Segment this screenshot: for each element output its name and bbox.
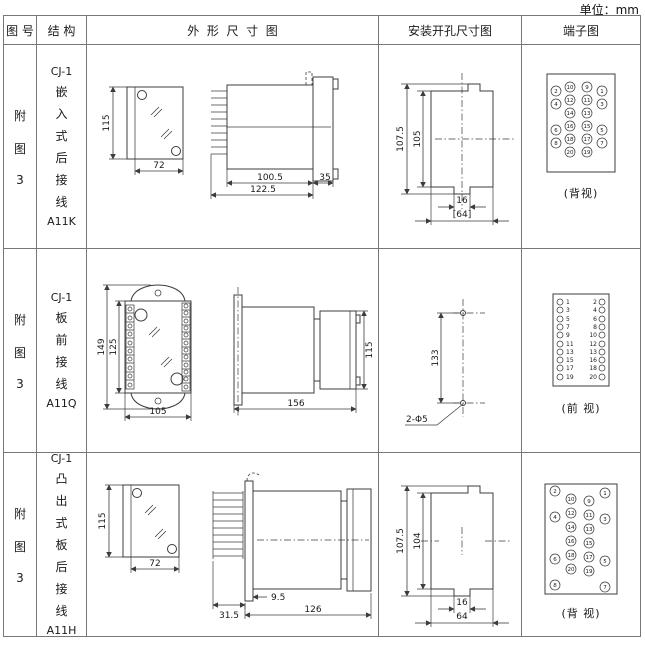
svg-text:3: 3 — [603, 517, 607, 523]
terminal-diagram-row1: 10 12 14 16 18 20 9 11 13 15 17 19 2 4 6… — [522, 45, 640, 249]
fig-char: 3 — [16, 173, 24, 187]
svg-text:8: 8 — [553, 583, 557, 589]
structure-char: 入 — [55, 105, 67, 122]
install-drawing-row2: 133 2-Φ5 — [379, 249, 522, 453]
front-view-drawing-a11q: 149 125 105 — [93, 275, 208, 427]
header-outline-dims: 外 形 尺 寸 图 — [87, 16, 379, 45]
dim-label-width: 72 — [149, 559, 160, 569]
dim-label-offset: 9.5 — [271, 593, 285, 603]
holes-shape — [453, 299, 485, 417]
svg-text:19: 19 — [584, 150, 591, 156]
side-view-body — [213, 473, 371, 601]
fig-char: 图 — [14, 344, 26, 361]
dim-label-height: 115 — [365, 341, 375, 358]
svg-text:16: 16 — [568, 539, 575, 545]
structure-model: CJ-1 — [51, 453, 73, 465]
svg-text:6: 6 — [593, 316, 597, 323]
header-structure: 结 构 — [37, 16, 87, 45]
dim-label-body-length: 100.5 — [257, 173, 283, 183]
side-view-body — [234, 287, 360, 417]
svg-text:13: 13 — [566, 349, 574, 356]
terminal-numbers: 1 3 5 7 9 11 13 15 17 19 2 4 6 8 10 12 1 — [566, 299, 597, 381]
dim-label-total-height: 149 — [97, 338, 107, 355]
structure-char: 接 — [55, 171, 67, 188]
view-caption: (背 视) — [561, 605, 600, 621]
dim-label-opening-height: 104 — [413, 532, 423, 549]
svg-text:9: 9 — [566, 332, 570, 339]
structure-char: 前 — [55, 331, 67, 348]
structure-row3: CJ-1 凸 出 式 板 后 接 线 A11H — [37, 453, 87, 636]
svg-text:4: 4 — [593, 307, 597, 314]
dim-label-notch-width: 16 — [456, 598, 468, 608]
svg-text:11: 11 — [584, 98, 591, 104]
outline-drawing-row1: 115 72 100.5 — [87, 45, 379, 249]
svg-text:10: 10 — [568, 497, 575, 503]
svg-text:16: 16 — [589, 357, 597, 364]
svg-text:15: 15 — [586, 541, 593, 547]
dim-label-total-height: 107.5 — [396, 528, 406, 554]
svg-text:15: 15 — [584, 124, 591, 130]
fig-char: 图 — [14, 538, 26, 555]
cutout-shape — [431, 73, 515, 209]
dim-label-holes: 2-Φ5 — [406, 415, 428, 425]
svg-text:3: 3 — [566, 307, 570, 314]
outline-drawing-row3: 115 72 — [87, 453, 379, 636]
svg-text:11: 11 — [566, 341, 574, 348]
terminal-outline — [553, 294, 609, 386]
dim-label-opening-height: 105 — [413, 130, 423, 147]
fig-no-row1: 附 图 3 — [4, 45, 37, 249]
structure-char: 板 — [55, 536, 67, 553]
holes-drawing-a11q: 133 2-Φ5 — [385, 277, 515, 437]
svg-text:1: 1 — [600, 89, 604, 95]
dim-label-height: 115 — [102, 114, 112, 131]
svg-text:19: 19 — [566, 374, 574, 381]
spec-table: 图 号 结 构 外 形 尺 寸 图 安装开孔尺寸图 端子图 附 图 3 CJ-1… — [3, 15, 641, 637]
side-view-drawing-a11h: 9.5 31.5 126 — [201, 469, 377, 625]
terminal-map-back-view: 10 12 14 16 18 20 9 11 13 15 17 19 2 4 6… — [544, 483, 618, 595]
svg-text:20: 20 — [568, 567, 575, 573]
svg-text:20: 20 — [567, 150, 574, 156]
svg-text:15: 15 — [566, 357, 574, 364]
structure-char: 后 — [55, 558, 67, 575]
side-view-dimensions: 115 156 — [234, 311, 375, 413]
terminal-numbers: 10 12 14 16 18 20 9 11 13 15 17 19 2 4 6… — [553, 489, 607, 591]
svg-text:7: 7 — [566, 324, 570, 331]
dim-label-width: 72 — [153, 161, 164, 171]
front-view-body — [123, 485, 179, 557]
svg-text:8: 8 — [593, 324, 597, 331]
header-fig-no: 图 号 — [4, 16, 37, 45]
structure-code: A11H — [47, 624, 77, 636]
terminal-diagram-row2: 1 3 5 7 9 11 13 15 17 19 2 4 6 8 10 12 1 — [522, 249, 640, 453]
cutout-dimensions: 107.5 104 16 64 — [396, 486, 509, 627]
terminal-map-front-view: 1 3 5 7 9 11 13 15 17 19 2 4 6 8 10 12 1 — [552, 293, 610, 387]
outline-drawing-row2: 149 125 105 — [87, 249, 379, 453]
svg-text:5: 5 — [603, 559, 607, 565]
terminal-outline — [545, 484, 617, 594]
structure-row1: CJ-1 嵌 入 式 后 接 线 A11K — [37, 45, 87, 249]
structure-char: 出 — [55, 492, 67, 509]
side-view-body — [211, 72, 338, 181]
svg-text:14: 14 — [568, 525, 575, 531]
structure-code: A11K — [47, 215, 76, 228]
structure-code: A11Q — [46, 397, 76, 410]
svg-text:7: 7 — [603, 585, 607, 591]
front-view-drawing-a11h: 115 72 — [93, 469, 193, 601]
header-install-dims: 安装开孔尺寸图 — [379, 16, 522, 45]
svg-text:5: 5 — [566, 316, 570, 323]
svg-text:6: 6 — [554, 128, 558, 134]
terminal-diagram-row3: 10 12 14 16 18 20 9 11 13 15 17 19 2 4 6… — [522, 453, 640, 636]
svg-text:8: 8 — [554, 141, 558, 147]
front-view-dimensions: 115 72 — [102, 87, 183, 175]
dim-label-pin-length: 31.5 — [219, 611, 239, 621]
structure-char: 嵌 — [55, 83, 67, 100]
structure-model: CJ-1 — [51, 65, 73, 78]
side-view-drawing-a11q: 115 156 — [216, 287, 376, 419]
svg-text:13: 13 — [584, 111, 591, 117]
fig-no-row2: 附 图 3 — [4, 249, 37, 453]
dim-label-total-height: 107.5 — [396, 126, 406, 152]
structure-char: 线 — [55, 375, 67, 392]
terminal-map-back-view: 10 12 14 16 18 20 9 11 13 15 17 19 2 4 6… — [546, 73, 616, 173]
view-caption: (前 视) — [561, 400, 600, 416]
holes-dimensions: 133 2-Φ5 — [405, 313, 463, 425]
svg-text:12: 12 — [568, 511, 575, 517]
side-view-drawing-a11k: 100.5 35 122.5 — [205, 71, 355, 203]
fig-char: 图 — [14, 140, 26, 157]
svg-text:4: 4 — [554, 102, 558, 108]
dim-label-total-length: 122.5 — [250, 185, 276, 195]
svg-text:6: 6 — [553, 557, 557, 563]
svg-text:16: 16 — [567, 124, 574, 130]
terminal-numbers: 10 12 14 16 18 20 9 11 13 15 17 19 2 4 6… — [554, 85, 604, 156]
svg-text:20: 20 — [589, 374, 597, 381]
dim-label-bezel: 35 — [319, 173, 330, 183]
svg-text:18: 18 — [567, 137, 574, 143]
structure-char: 线 — [55, 193, 67, 210]
terminal-circles — [557, 299, 605, 380]
svg-text:17: 17 — [566, 365, 574, 372]
terminal-circles — [550, 486, 610, 592]
svg-text:18: 18 — [568, 553, 575, 559]
dim-label-body-length: 126 — [304, 605, 321, 615]
fig-no-row3: 附 图 3 — [4, 453, 37, 636]
svg-text:13: 13 — [589, 349, 597, 356]
svg-text:9: 9 — [587, 499, 591, 505]
cutout-shape — [421, 486, 511, 596]
structure-char: 式 — [55, 127, 67, 144]
dim-label-total-length: 156 — [287, 399, 304, 409]
svg-text:4: 4 — [553, 515, 557, 521]
svg-text:5: 5 — [600, 128, 604, 134]
fig-char: 附 — [14, 107, 26, 124]
front-view-dimensions: 115 72 — [98, 485, 179, 573]
front-view-drawing-a11k: 115 72 — [97, 71, 197, 203]
structure-char: 式 — [55, 514, 67, 531]
datasheet-page: 单位：mm 图 号 结 构 外 形 尺 寸 图 安装开孔尺寸图 端子图 附 图 … — [0, 0, 645, 646]
install-drawing-row3: 107.5 104 16 64 — [379, 453, 522, 636]
front-view-body — [127, 87, 183, 159]
dim-label-width: 105 — [149, 407, 166, 417]
svg-text:3: 3 — [600, 102, 604, 108]
structure-char: 后 — [55, 149, 67, 166]
install-drawing-row1: 107.5 105 16 [64] — [379, 45, 522, 249]
svg-text:2: 2 — [553, 489, 557, 495]
dim-label-opening-width: 64 — [456, 612, 468, 622]
svg-text:9: 9 — [585, 85, 589, 91]
header-terminal: 端子图 — [522, 16, 640, 45]
dim-label-notch-width: 16 — [456, 196, 468, 206]
svg-text:7: 7 — [600, 141, 604, 147]
dim-label-hole-spacing: 133 — [431, 349, 441, 366]
structure-char: 接 — [55, 580, 67, 597]
svg-text:12: 12 — [567, 98, 574, 104]
cutout-dimensions: 107.5 105 16 [64] — [396, 84, 509, 225]
svg-text:1: 1 — [566, 299, 570, 306]
structure-model: CJ-1 — [51, 291, 73, 304]
structure-char: 接 — [55, 353, 67, 370]
view-caption: (背视) — [564, 185, 599, 201]
svg-text:2: 2 — [554, 89, 558, 95]
svg-text:1: 1 — [603, 491, 607, 497]
dim-label-opening-width: [64] — [452, 210, 470, 220]
structure-char: 凸 — [55, 470, 67, 487]
side-view-dimensions: 100.5 35 122.5 — [211, 154, 333, 199]
svg-text:11: 11 — [586, 513, 593, 519]
fig-char: 3 — [16, 571, 24, 585]
svg-text:19: 19 — [586, 569, 593, 575]
svg-text:10: 10 — [567, 85, 574, 91]
fig-char: 附 — [14, 505, 26, 522]
svg-text:17: 17 — [584, 137, 591, 143]
cutout-drawing-a11k: 107.5 105 16 [64] — [383, 59, 518, 229]
svg-text:17: 17 — [586, 555, 593, 561]
svg-text:2: 2 — [593, 299, 597, 306]
fig-char: 3 — [16, 377, 24, 391]
svg-text:10: 10 — [589, 332, 597, 339]
structure-row2: CJ-1 板 前 接 线 A11Q — [37, 249, 87, 453]
terminal-circles — [551, 82, 607, 157]
svg-text:13: 13 — [586, 527, 593, 533]
fig-char: 附 — [14, 311, 26, 328]
dim-label-height: 115 — [98, 512, 108, 529]
structure-char: 线 — [55, 602, 67, 619]
structure-char: 板 — [55, 309, 67, 326]
svg-text:14: 14 — [567, 111, 574, 117]
svg-text:12: 12 — [589, 341, 597, 348]
front-view-dimensions: 149 125 105 — [97, 285, 191, 421]
svg-text:18: 18 — [589, 365, 597, 372]
front-view-body — [125, 285, 191, 409]
dim-label-case-height: 125 — [109, 338, 119, 355]
cutout-drawing-a11h: 107.5 104 16 64 — [383, 461, 518, 631]
